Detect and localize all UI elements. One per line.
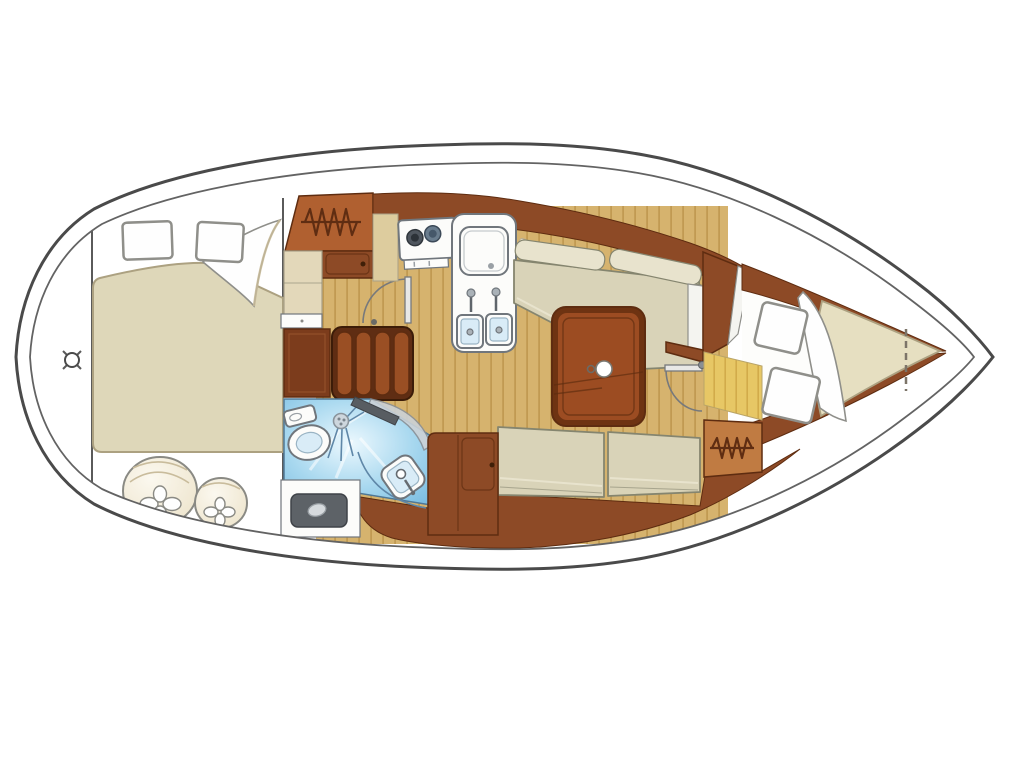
boat-floor-plan: Sailboat interior layout floor plan, top… (0, 0, 1024, 768)
aft-pillow-right (196, 222, 244, 262)
step-slat (394, 332, 409, 395)
basin-faucet (397, 470, 406, 479)
salon-table (552, 307, 645, 426)
port-settee (498, 427, 700, 497)
boat-floor-plan-canvas: Sailboat interior layout floor plan, top… (0, 0, 1024, 768)
position-crosshair-icon (63, 351, 81, 369)
drawer-strip-knob (301, 320, 304, 323)
head-vanity-counter (281, 480, 360, 537)
icebox-latch (488, 263, 494, 269)
step-slat (337, 332, 352, 395)
oven-front (404, 258, 448, 269)
fwd-pillow-top (754, 301, 809, 354)
fwd-pillow-bottom (761, 367, 820, 424)
step-slat (375, 332, 390, 395)
icebox-lid (460, 227, 508, 275)
cabinet-knob (490, 463, 495, 468)
galley-beige-strip (373, 214, 398, 281)
aft-pillow-left (122, 221, 172, 260)
companionway-steps (332, 327, 413, 400)
drawer-knob (361, 262, 366, 267)
table-cup-recess (596, 361, 612, 377)
door-pivot (371, 319, 377, 325)
port-settee-cushion-left (498, 427, 604, 497)
step-slat (356, 332, 371, 395)
companionway-side-cabinet (284, 329, 330, 397)
port-cabinet (428, 433, 498, 535)
port-settee-cushion-right (608, 432, 700, 496)
